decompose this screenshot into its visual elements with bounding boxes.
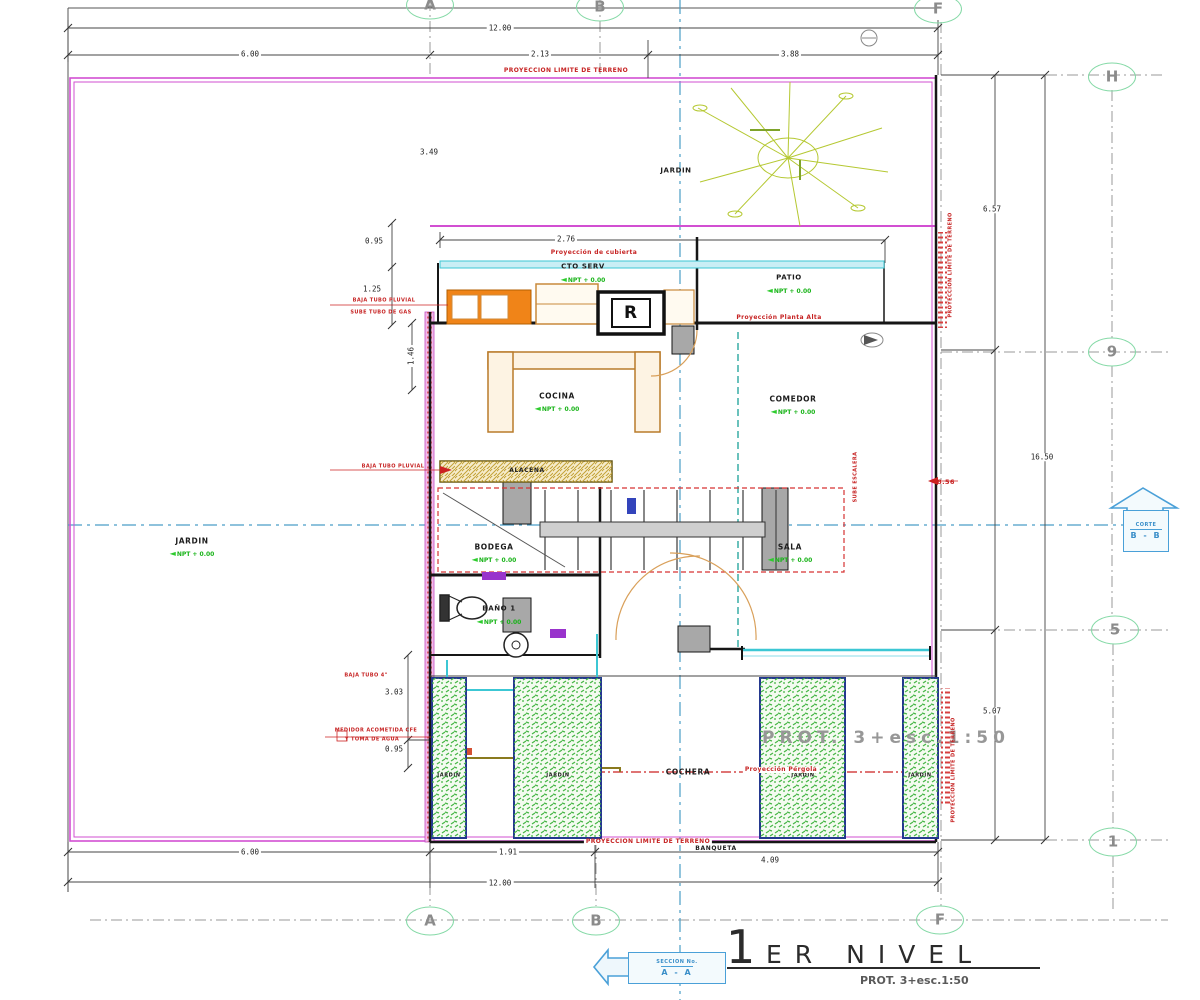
garden-tree (693, 82, 888, 226)
grid-bubble-B-8: B (572, 907, 620, 936)
section-label-box: CORTE B - B (1123, 510, 1169, 552)
npt-level-label-comedor: ◄NPT + 0.00 (771, 408, 816, 416)
room-label-patio: PATIO (776, 275, 802, 282)
red-annotation: BAJA TUBO 4" (344, 674, 387, 679)
room-label-jardin-top: JARDIN (660, 168, 691, 175)
npt-arrow-icon: ◄ (477, 617, 483, 626)
room-label-comedor: COMEDOR (769, 395, 816, 403)
npt-arrow-icon: ◄ (535, 404, 541, 413)
npt-level-label-jardin-left: ◄NPT + 0.00 (170, 550, 215, 558)
floor-plan-drawing (0, 0, 1200, 1000)
dimension-label: 6.57 (981, 205, 1003, 213)
kitchen-counters (447, 284, 694, 334)
room-label-bodega: BODEGA (474, 543, 513, 551)
dimension-label: 6.00 (239, 50, 261, 58)
walls (430, 75, 936, 842)
red-annotation: SUBE TUBO DE GAS (350, 311, 411, 316)
room-label-jardin-p1: JARDIN (437, 774, 460, 779)
npt-arrow-icon: ◄ (771, 407, 777, 416)
npt-level-label-cocina: ◄NPT + 0.00 (535, 405, 580, 413)
npt-level-label-cto-serv: ◄NPT + 0.00 (561, 276, 606, 284)
dimension-label: 1.46 (407, 345, 415, 367)
title-underline (727, 967, 1040, 969)
red-annotation: Proyección de cubierta (551, 250, 638, 256)
room-label-sala: SALA (778, 543, 802, 551)
npt-level-label-bodega: ◄NPT + 0.00 (472, 556, 517, 564)
dimension-label: 1.91 (497, 848, 519, 856)
red-annotation: Proyección Pérgola (743, 767, 819, 773)
dimension-label: 3.03 (383, 688, 405, 696)
red-annotation: PROYECCION LIMITE DE TERRENO (952, 717, 957, 822)
section-line2: B - B (1130, 529, 1161, 540)
dimension-label: 6.00 (239, 848, 261, 856)
red-annotation: PROYECCION LIMITE DE TERRENO (504, 68, 628, 74)
dimension-label: 2.13 (529, 50, 551, 58)
npt-arrow-icon: ◄ (767, 286, 773, 295)
title-numeral: 1 (726, 924, 755, 970)
boiler-label: R (624, 303, 637, 323)
grid-bubble-H-3: H (1088, 63, 1136, 92)
room-label-jardin-p3: JARDIN (791, 774, 814, 779)
room-label-jardin-p2: JARDIN (546, 774, 569, 779)
section-line1: SECCION No. (656, 959, 697, 965)
grid-bubble-A-7: A (406, 907, 454, 936)
room-label-jardin-p4: JARDIN (908, 774, 931, 779)
room-label-cto-serv: CTO SERV (561, 264, 605, 271)
dimension-label: 0.95 (363, 237, 385, 245)
dimension-label: 0.95 (383, 745, 405, 753)
section-arrow-up-icon (1105, 486, 1185, 512)
dimension-label: 3.88 (779, 50, 801, 58)
grid-bubble-9-4: 9 (1088, 338, 1136, 367)
dimension-label: 12.00 (487, 24, 514, 32)
floor-plan-sheet: PROT. 3+esc.1:50 R JARDIN◄NPT + 0.00JARD… (0, 0, 1200, 1000)
grid-bubble-1-6: 1 (1089, 828, 1137, 857)
red-annotation: SUBE ESCALERA (854, 452, 859, 503)
room-label-cocina: COCINA (539, 392, 575, 400)
dimension-label: 5.07 (981, 707, 1003, 715)
room-label-cochera: COCHERA (666, 768, 711, 776)
npt-arrow-icon: ◄ (768, 555, 774, 564)
room-label-bano-1: BAÑO 1 (482, 606, 515, 613)
npt-level-label-patio: ◄NPT + 0.00 (767, 287, 812, 295)
section-line1: CORTE (1136, 522, 1157, 528)
dimension-label: 4.09 (759, 856, 781, 864)
dimension-label: 12.00 (487, 879, 514, 887)
npt-level-label-bano-1: ◄NPT + 0.00 (477, 618, 522, 626)
section-label-box: SECCION No. A - A (628, 952, 726, 984)
npt-arrow-icon: ◄ (561, 275, 567, 284)
red-annotation: BAJA TUBO PLUVIAL (362, 465, 425, 470)
section-line2: A - A (661, 966, 692, 977)
npt-level-label-sala: ◄NPT + 0.00 (768, 556, 813, 564)
red-annotation: PROYECCION LIMITE DE TERRENO (949, 212, 954, 317)
red-annotation: BAJA TUBO PLUVIAL (353, 299, 416, 304)
grid-bubble-5-5: 5 (1091, 616, 1139, 645)
title-name: ER NIVEL (766, 942, 984, 967)
red-annotation: MEDIDOR ACOMETIDA CFE (335, 729, 418, 734)
dimension-label: 3.49 (418, 148, 440, 156)
red-annotation: 8.56 (937, 479, 955, 486)
dimension-label: 1.25 (361, 285, 383, 293)
room-label-alacena: ALACENA (509, 468, 544, 474)
dimension-label: 16.50 (1029, 453, 1056, 461)
npt-arrow-icon: ◄ (472, 555, 478, 564)
grid-bubble-F-9: F (916, 906, 964, 935)
title-scale-note: PROT. 3+esc.1:50 (860, 974, 969, 987)
red-annotation: Proyección Planta Alta (734, 315, 823, 321)
grid-axes (68, 0, 1168, 1000)
npt-arrow-icon: ◄ (170, 549, 176, 558)
dimension-label: 2.76 (555, 235, 577, 243)
red-annotation: Y TOMA DE AGUA (345, 738, 399, 743)
room-label-jardin-left: JARDIN (175, 537, 208, 545)
red-annotation: PROYECCION LIMITE DE TERRENO (584, 839, 712, 845)
scale-watermark: PROT. 3+esc.1:50 (762, 728, 1010, 748)
room-label-banqueta: BANQUETA (695, 846, 736, 852)
